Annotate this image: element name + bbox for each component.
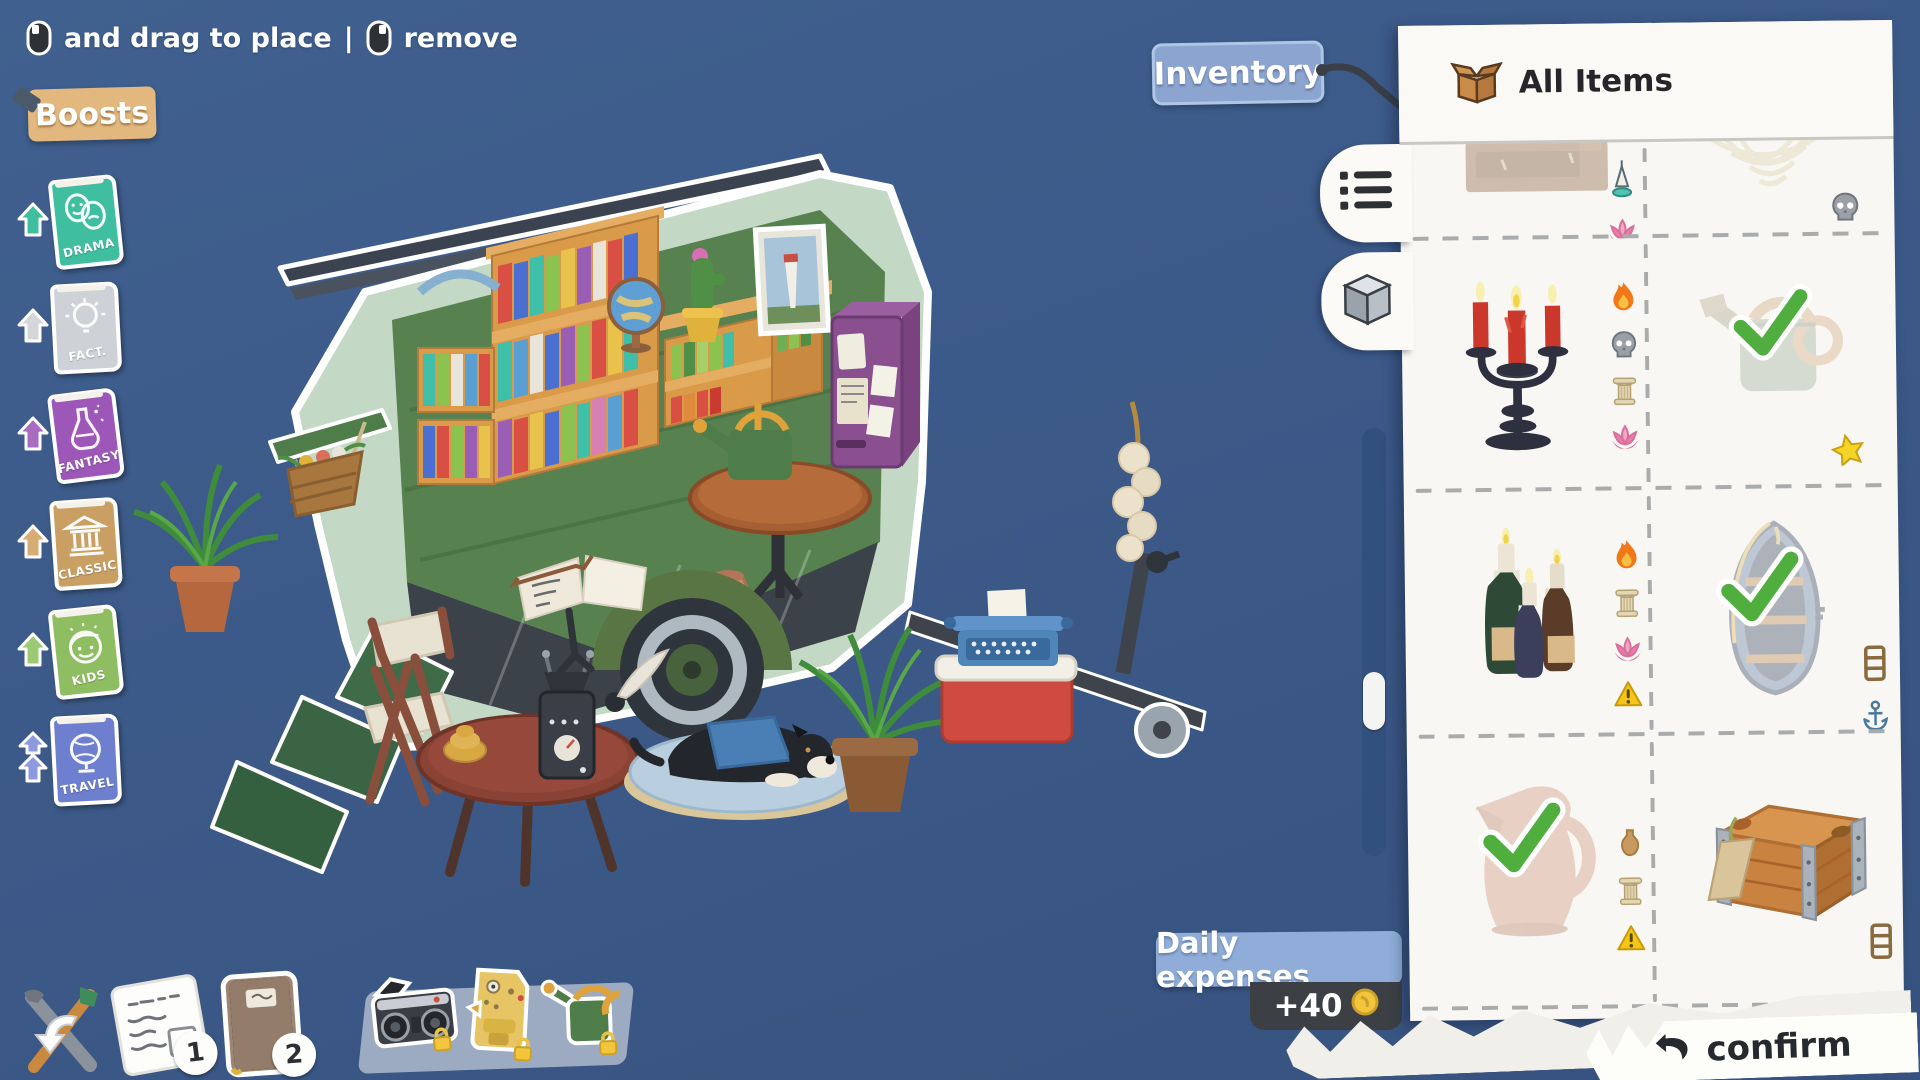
inventory-cell-bottle-candles[interactable]	[1404, 490, 1654, 739]
skull-icon	[1610, 330, 1638, 362]
inventory-row	[1401, 235, 1898, 493]
boost-up-arrow-icon	[16, 631, 52, 673]
daily-expenses-amount: +40	[1250, 982, 1402, 1030]
selected-check-icon	[1475, 797, 1566, 884]
shelf-icon	[1869, 923, 1893, 963]
warning-icon	[1613, 680, 1643, 712]
inventory-cell-boat-shelf[interactable]	[1651, 487, 1901, 736]
greek-temple-icon	[61, 511, 110, 562]
boost-drama[interactable]: DRAMA	[16, 172, 146, 272]
star-icon	[1831, 433, 1865, 469]
lock-icon	[597, 1030, 620, 1061]
boost-fantasy[interactable]: FANTASY	[16, 386, 146, 486]
remove-hint-label: remove	[404, 23, 518, 54]
boosts-sign: Boosts	[27, 86, 156, 141]
wooden-crate-attribute-icons	[1869, 923, 1893, 963]
boosts-title: Boosts	[34, 95, 149, 133]
boost-up-arrow-icon	[16, 201, 52, 243]
inventory-cell-wall-shelf[interactable]	[1399, 142, 1647, 241]
notes-page-button[interactable]: 1	[106, 967, 216, 1080]
open-box-icon	[1450, 58, 1503, 109]
typewriter-on-cooler[interactable]	[936, 589, 1076, 742]
right-mouse-button-icon	[366, 20, 392, 56]
warning-icon	[1616, 924, 1646, 956]
boost-fact[interactable]: FACT.	[16, 278, 146, 378]
list-view-icon	[1340, 169, 1393, 218]
boombox-sticker[interactable]	[364, 968, 464, 1057]
candelabra-attribute-icons	[1608, 280, 1640, 454]
confirm-label: confirm	[1706, 1025, 1852, 1070]
hanging-basket-item	[1701, 139, 1832, 227]
lotus-icon	[1610, 424, 1640, 454]
inventory-cell-hanging-basket[interactable]	[1646, 139, 1894, 238]
left-mouse-button-icon	[26, 20, 52, 56]
inventory-list	[1399, 139, 1904, 1011]
bottle-candles-attribute-icons	[1611, 538, 1643, 712]
watering-can-sticker[interactable]	[539, 970, 628, 1059]
inventory-tag-string	[1316, 52, 1406, 116]
inventory-row	[1404, 487, 1901, 739]
wooden-crate-item	[1692, 773, 1879, 934]
boost-up-arrow-icon	[16, 523, 52, 565]
column-icon	[1610, 376, 1638, 410]
placement-hint-bar: and drag to place | remove	[26, 20, 518, 56]
inventory-title: All Items	[1519, 63, 1674, 101]
daily-expenses-label: Daily expenses	[1156, 931, 1402, 987]
fire-icon	[1609, 280, 1637, 316]
lighthouse-picture[interactable]	[755, 226, 828, 333]
garlic-strand[interactable]	[1113, 402, 1160, 561]
boost-double-up-arrow-icon	[16, 731, 52, 789]
vase-icon	[1618, 828, 1642, 862]
column-icon	[1616, 876, 1644, 910]
lock-icon	[511, 1036, 535, 1067]
boost-classic[interactable]: CLASSIC	[16, 494, 146, 594]
boost-up-arrow-icon	[16, 415, 52, 457]
lightbulb-icon	[62, 296, 109, 348]
inventory-panel: All Items	[1398, 20, 1904, 1021]
inventory-tag[interactable]: Inventory	[1151, 41, 1324, 106]
quickbar: 1 2	[0, 955, 700, 1080]
selected-check-icon	[1713, 546, 1804, 633]
inventory-tag-label: Inventory	[1153, 54, 1322, 93]
inventory-cell-candelabra[interactable]	[1401, 238, 1651, 493]
bottle-candles-item	[1456, 511, 1603, 717]
skull-icon	[1830, 191, 1860, 225]
coffee-machine-sticker[interactable]	[460, 961, 541, 1061]
selected-check-icon	[1726, 284, 1813, 367]
fire-icon	[1612, 538, 1640, 574]
undo-arrow-icon	[1652, 1029, 1693, 1073]
wall-shelf-attribute-icons	[1606, 142, 1638, 241]
caravan-scene	[120, 110, 1330, 1050]
drag-hint-label: and drag to place	[64, 23, 332, 54]
pitcher-attribute-icons	[1615, 828, 1647, 956]
note-dispenser[interactable]	[832, 302, 920, 467]
inventory-cell-pitcher[interactable]	[1407, 736, 1657, 1011]
coin-icon	[1351, 988, 1379, 1024]
boat-shelf-attribute-icons	[1860, 645, 1891, 735]
incense-icon	[1610, 158, 1635, 204]
candelabra-item	[1456, 257, 1579, 477]
inventory-scrollbar[interactable]	[1362, 428, 1386, 856]
fern-left[interactable]	[134, 465, 278, 632]
inventory-cell-wooden-crate[interactable]	[1654, 733, 1904, 1008]
expenses-amount-value: +40	[1273, 988, 1342, 1024]
lotus-icon	[1613, 636, 1643, 666]
inventory-row	[1399, 139, 1894, 241]
child-face-icon	[60, 619, 111, 674]
cube-view-icon	[1342, 273, 1393, 330]
boost-kids[interactable]: KIDS	[16, 602, 146, 702]
inventory-row	[1407, 733, 1904, 1011]
theater-masks-icon	[60, 189, 111, 242]
boost-up-arrow-icon	[16, 307, 52, 349]
hint-separator: |	[344, 23, 354, 54]
vase-icon	[1610, 142, 1632, 144]
journal-button[interactable]: 2	[214, 966, 310, 1080]
anchor-icon	[1860, 699, 1890, 735]
inventory-cell-watering-can[interactable]	[1648, 235, 1898, 490]
tools-button[interactable]	[10, 983, 110, 1080]
inventory-header: All Items	[1398, 20, 1893, 142]
boost-travel[interactable]: TRAVEL	[16, 710, 146, 810]
wall-shelf-item	[1461, 142, 1612, 218]
lock-icon	[430, 1025, 455, 1057]
shelf-icon	[1863, 645, 1887, 685]
scrollbar-handle[interactable]	[1363, 672, 1385, 730]
column-icon	[1613, 588, 1641, 622]
